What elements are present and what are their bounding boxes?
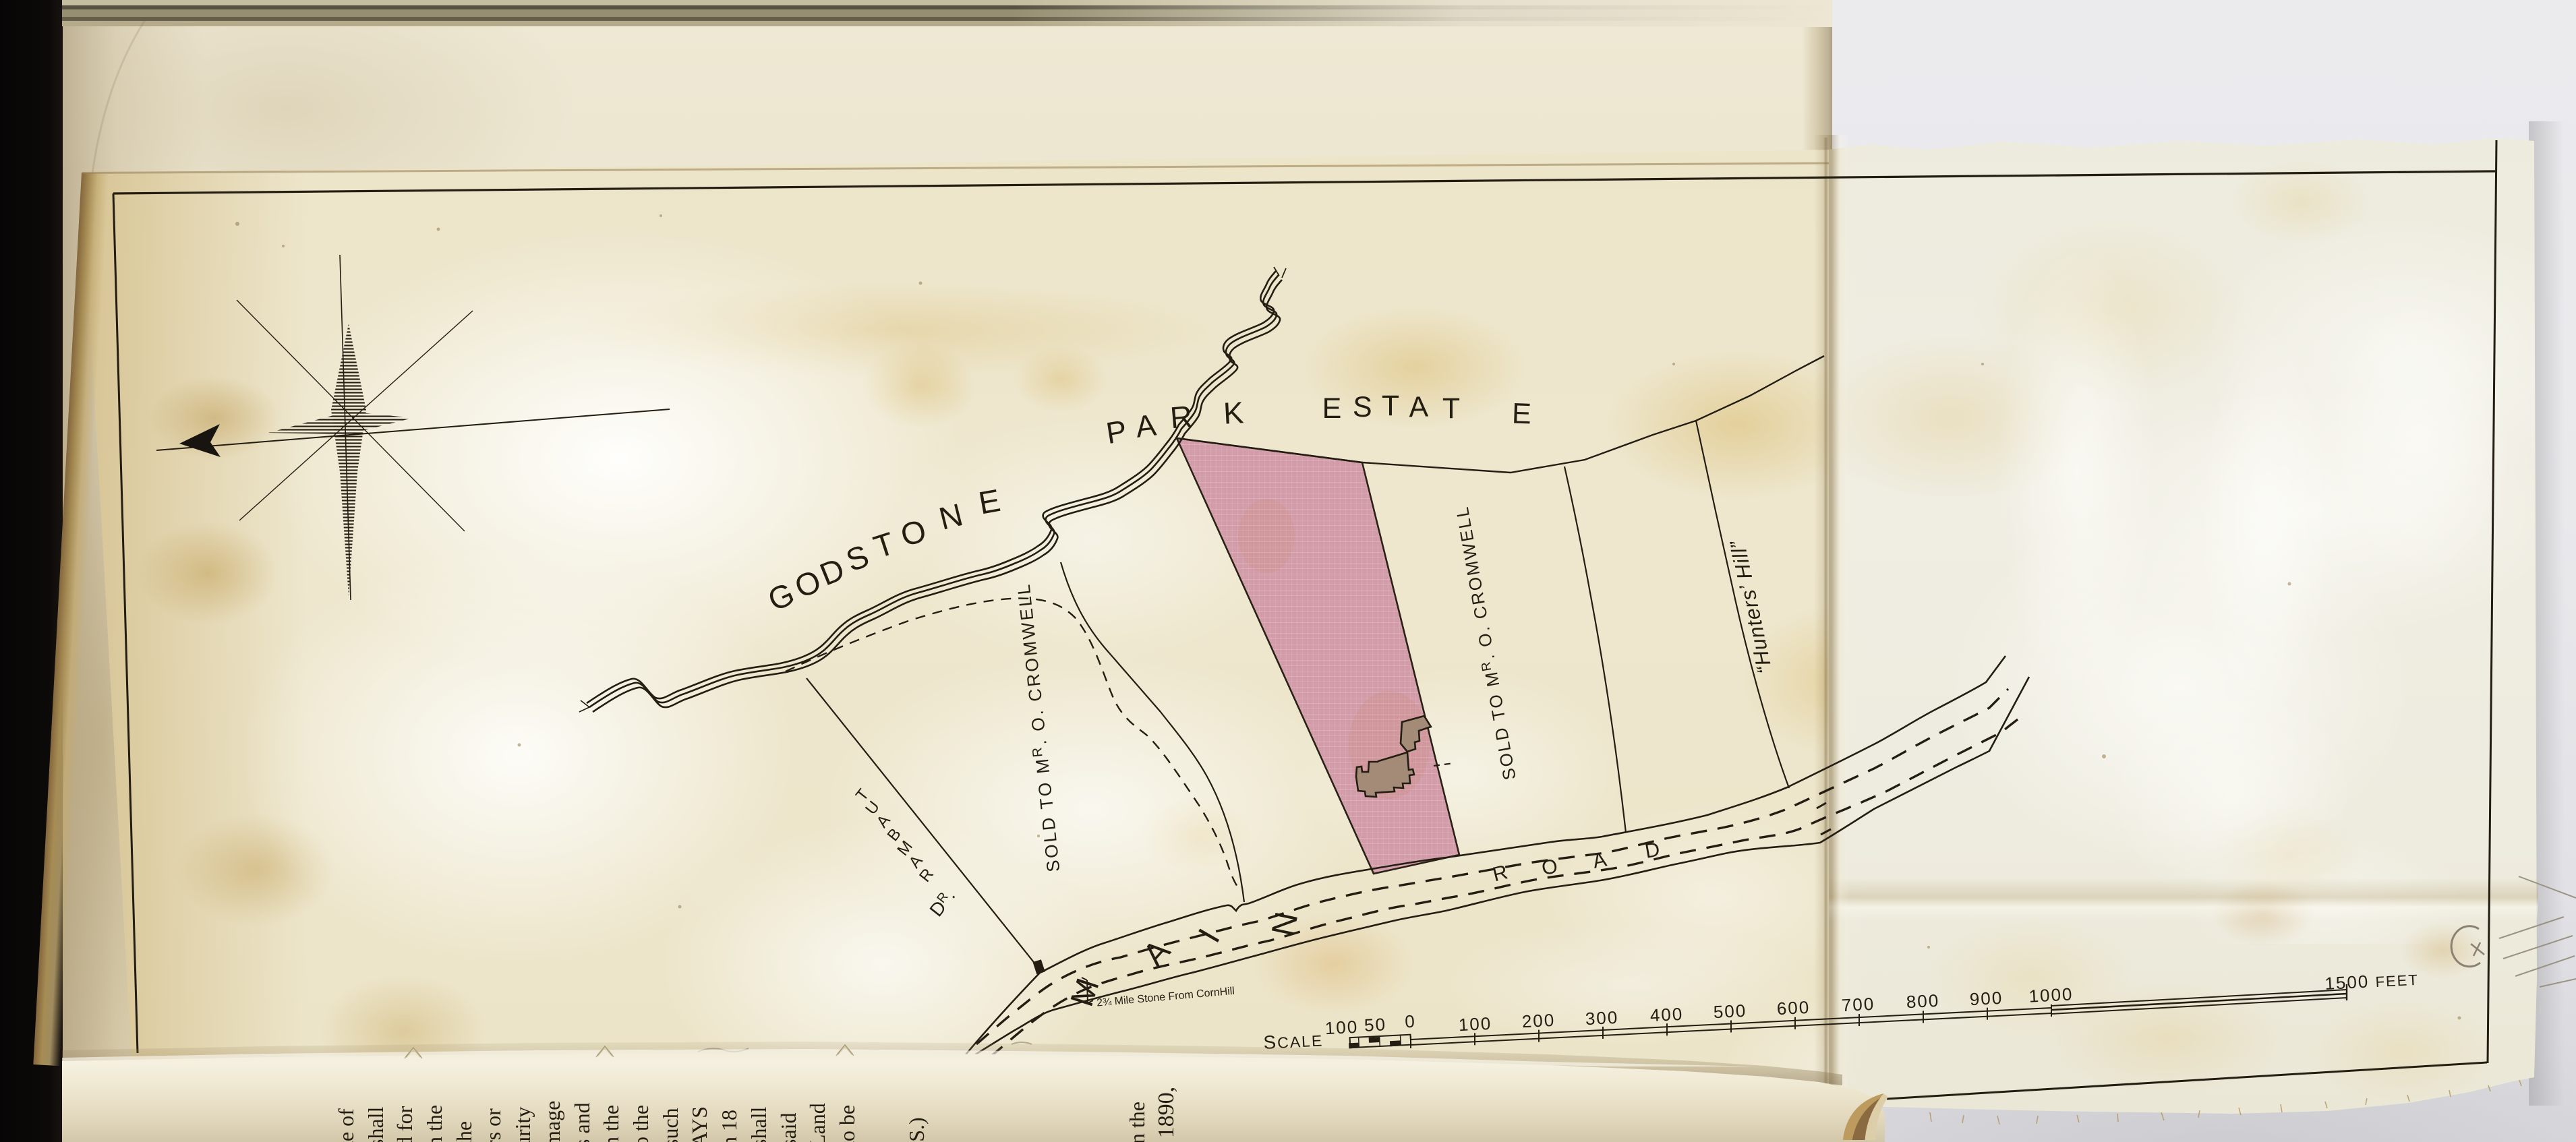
svg-text:mage: mage: [540, 1101, 564, 1142]
svg-text:shall: shall: [747, 1106, 771, 1142]
svg-text:n the: n the: [422, 1105, 446, 1142]
svg-text:urity: urity: [510, 1107, 535, 1142]
svg-text:said: said: [776, 1112, 800, 1142]
svg-text:rs or: rs or: [481, 1108, 505, 1142]
svg-text:the: the: [452, 1121, 476, 1142]
svg-text:to be: to be: [835, 1105, 859, 1142]
svg-text:s and: s and: [570, 1102, 594, 1142]
svg-text:o the: o the: [628, 1105, 653, 1142]
svg-text:AYS: AYS: [687, 1106, 711, 1142]
svg-text:te of: te of: [334, 1108, 358, 1142]
svg-text:in the: in the: [1125, 1102, 1149, 1142]
svg-text:(L.S.): (L.S.): [904, 1117, 929, 1142]
svg-text:such: such: [658, 1108, 682, 1142]
svg-text:Land: Land: [805, 1103, 829, 1142]
svg-text:h the: h the: [599, 1105, 623, 1142]
svg-text:n 18: n 18: [717, 1110, 741, 1142]
svg-text:d for: d for: [392, 1106, 417, 1142]
svg-text:shall: shall: [363, 1106, 388, 1142]
svg-text:e 1890,: e 1890,: [1154, 1087, 1179, 1142]
